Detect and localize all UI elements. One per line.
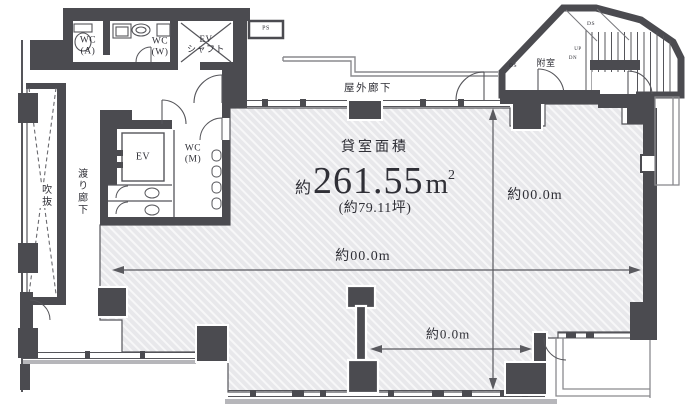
door-arc-wcm: [200, 118, 222, 140]
label-duct-space-2: DS: [587, 21, 595, 27]
label-wc-w: WC (W): [152, 36, 169, 57]
area-unit-superscript: 2: [448, 168, 455, 184]
right-wall-window: [641, 155, 656, 172]
area-value: 261.55: [313, 159, 424, 203]
label-pipe-space: PS: [262, 26, 270, 33]
dimension-partial-label: 約0.0m: [426, 328, 470, 343]
label-stair-up: UP: [574, 47, 581, 53]
label-duct-space-1: DS: [509, 63, 517, 69]
floor-plan: 貸室面積 約261.55m2 (約79.11坪) 約00.0m 約00.0m 約…: [0, 0, 688, 411]
entrance-doors: [162, 75, 222, 124]
label-void: 吹抜: [39, 184, 50, 208]
label-wc-m: WC (M): [185, 143, 201, 164]
label-bridge-corridor: 渡り廊下: [75, 168, 86, 216]
area-tsubo: (約79.11坪): [339, 201, 412, 217]
stair-landing-bar: [590, 60, 640, 70]
area-unit: m: [425, 168, 448, 201]
right-balcony: [655, 97, 679, 185]
label-outdoor-corridor: 屋外廊下: [344, 83, 392, 95]
area-value-line: 約261.55m2: [295, 159, 455, 203]
area-title: 貸室面積: [341, 140, 409, 156]
label-wc-a: WC (A): [80, 35, 96, 56]
label-ev: EV: [136, 151, 150, 162]
dimension-width-label: 約00.0m: [335, 249, 390, 265]
bottom-right-walkway: [556, 338, 650, 398]
window-wall-left-bottom: [22, 351, 196, 359]
dimension-height-label: 約00.0m: [507, 188, 562, 204]
label-vestibule: 附室: [536, 58, 555, 68]
outdoor-corridor-railing: [283, 57, 498, 76]
label-ev-shaft: EV シャフト: [187, 34, 225, 54]
area-approx-prefix: 約: [295, 174, 311, 198]
door-arc-wc-w: [136, 47, 151, 62]
urinals: [212, 150, 221, 209]
label-stair-down: DN: [569, 56, 577, 62]
